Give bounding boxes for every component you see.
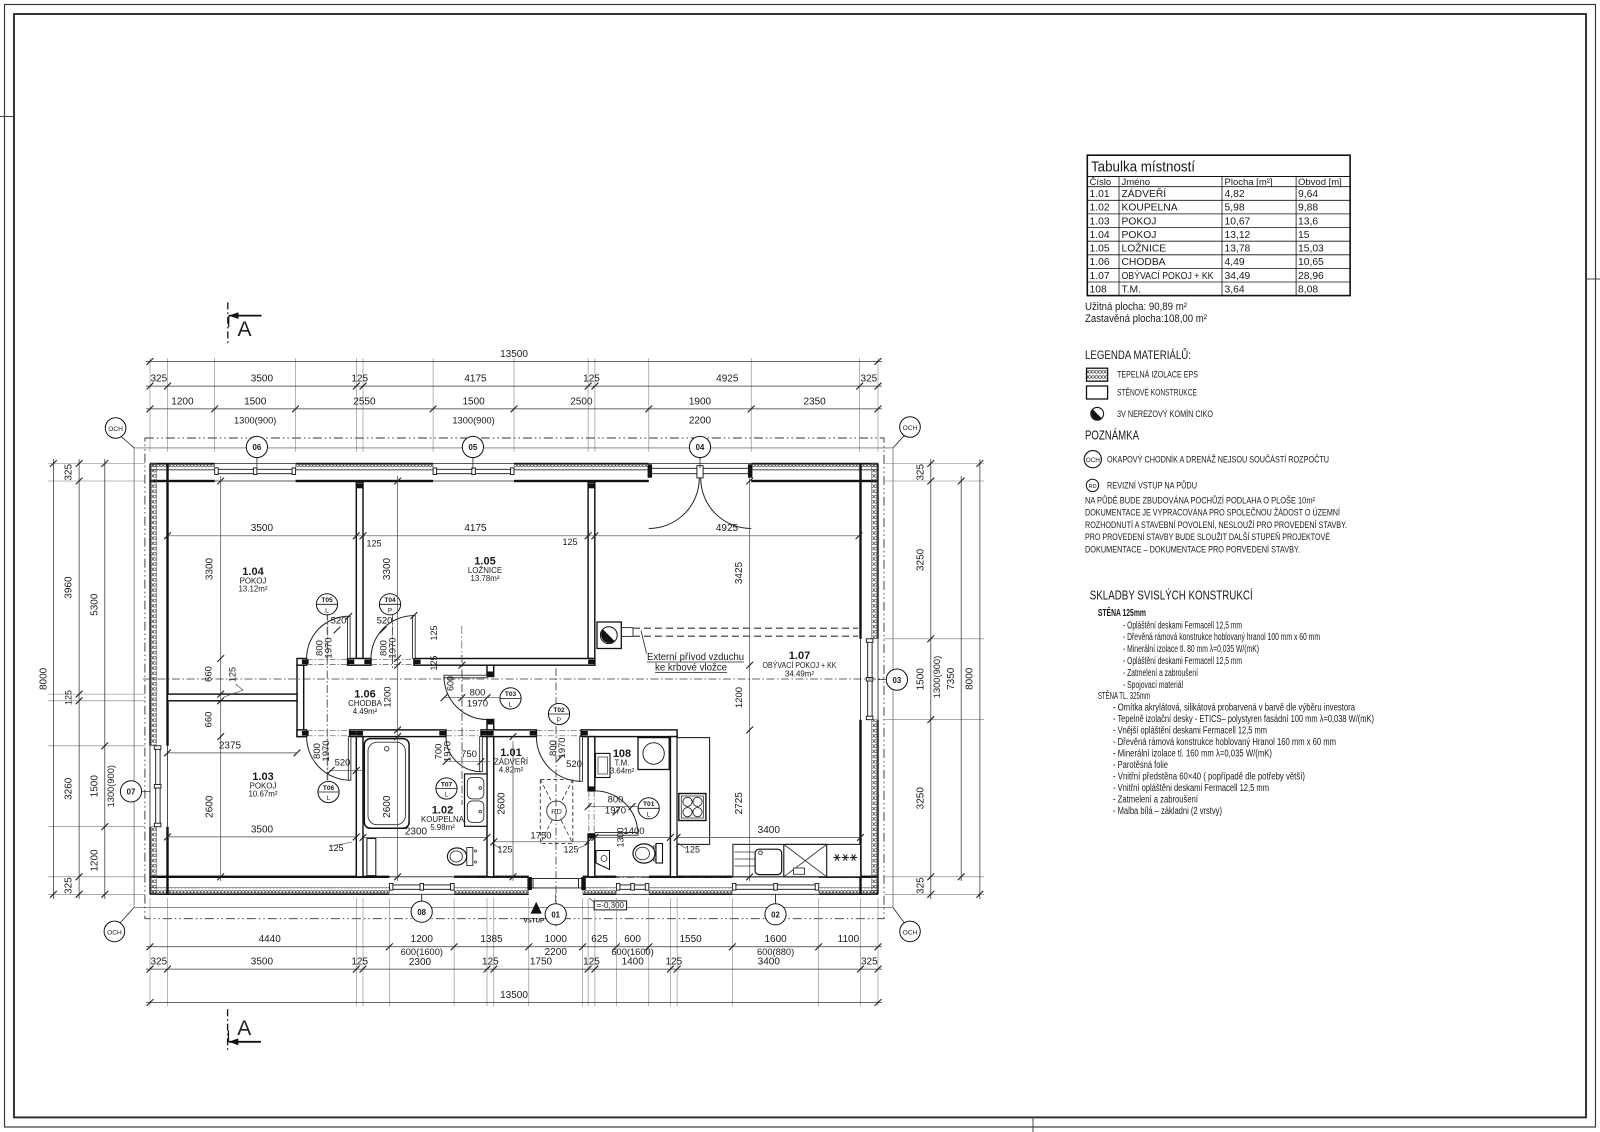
svg-text:OBÝVACÍ POKOJ + KK: OBÝVACÍ POKOJ + KK bbox=[1122, 269, 1214, 282]
svg-text:Jméno: Jméno bbox=[1122, 177, 1151, 188]
svg-text:800: 800 bbox=[608, 795, 624, 806]
svg-text:03: 03 bbox=[893, 676, 902, 685]
svg-text:=-0,300: =-0,300 bbox=[597, 901, 625, 910]
svg-text:1970: 1970 bbox=[321, 740, 332, 761]
svg-text:- Minerální izolace tl. 80 mm: - Minerální izolace tl. 80 mm λ=0,035 W/… bbox=[1123, 644, 1259, 655]
svg-text:34,49: 34,49 bbox=[1225, 271, 1251, 282]
svg-text:5.98m²: 5.98m² bbox=[430, 823, 455, 832]
svg-text:- Omítka akrylátová, silikátov: - Omítka akrylátová, silikátová probarve… bbox=[1113, 703, 1355, 714]
svg-text:325: 325 bbox=[150, 957, 167, 968]
svg-text:- Vnitřní opláštěni deskami Fe: - Vnitřní opláštěni deskami Fermacell 12… bbox=[1113, 783, 1269, 794]
svg-text:STĚNOVÉ KONSTRUKCE: STĚNOVÉ KONSTRUKCE bbox=[1117, 388, 1197, 398]
svg-text:3260: 3260 bbox=[64, 777, 75, 800]
svg-text:NA PŮDĚ BUDE ZBUDOVÁNA POCHŮZÍ: NA PŮDĚ BUDE ZBUDOVÁNA POCHŮZÍ PODLAHA O… bbox=[1085, 495, 1316, 507]
svg-text:325: 325 bbox=[861, 374, 878, 385]
svg-text:OCH: OCH bbox=[903, 929, 918, 936]
svg-text:520: 520 bbox=[335, 758, 351, 769]
svg-text:1.05: 1.05 bbox=[1090, 244, 1110, 255]
svg-text:3300: 3300 bbox=[205, 557, 216, 580]
svg-text:325: 325 bbox=[915, 877, 926, 894]
svg-text:1300(900): 1300(900) bbox=[452, 416, 494, 426]
svg-text:1.01: 1.01 bbox=[1090, 189, 1110, 200]
svg-text:1300(900): 1300(900) bbox=[234, 416, 276, 426]
svg-text:2350: 2350 bbox=[803, 396, 826, 407]
svg-text:OCH: OCH bbox=[108, 426, 123, 433]
svg-text:2600: 2600 bbox=[205, 795, 216, 818]
svg-text:1900: 1900 bbox=[689, 396, 712, 407]
svg-text:10,67: 10,67 bbox=[1225, 216, 1251, 227]
svg-text:ZÁDVEŘÍ: ZÁDVEŘÍ bbox=[1122, 187, 1167, 200]
svg-text:125: 125 bbox=[563, 845, 578, 855]
svg-text:- Dřevěná rámová konstrukce ho: - Dřevěná rámová konstrukce hoblovaný Hr… bbox=[1113, 737, 1336, 748]
svg-text:600(1600): 600(1600) bbox=[401, 947, 443, 957]
svg-text:13500: 13500 bbox=[500, 349, 528, 360]
svg-text:125: 125 bbox=[685, 845, 700, 855]
svg-text:1750: 1750 bbox=[530, 830, 551, 841]
svg-text:T.M.: T.M. bbox=[1122, 284, 1141, 295]
svg-text:- Parotěsná folie: - Parotěsná folie bbox=[1113, 760, 1168, 771]
svg-text:RD: RD bbox=[1088, 484, 1096, 490]
svg-text:520: 520 bbox=[566, 759, 582, 770]
svg-text:RD: RD bbox=[551, 807, 562, 816]
svg-text:1500: 1500 bbox=[462, 396, 485, 407]
svg-text:125: 125 bbox=[429, 655, 439, 670]
svg-text:1.04: 1.04 bbox=[1090, 230, 1110, 241]
svg-text:1200: 1200 bbox=[90, 849, 101, 872]
svg-text:1385: 1385 bbox=[480, 934, 503, 945]
svg-text:3V NEREZOVÝ KOMÍN CIKO: 3V NEREZOVÝ KOMÍN CIKO bbox=[1117, 409, 1213, 419]
svg-text:L: L bbox=[325, 608, 329, 615]
svg-text:PRO PROVEDENÍ STAVBY BUDE SLOU: PRO PROVEDENÍ STAVBY BUDE SLOUŽIT DALŠÍ … bbox=[1085, 532, 1330, 543]
svg-text:CHODBA: CHODBA bbox=[1122, 257, 1166, 268]
svg-text:1970: 1970 bbox=[605, 806, 626, 817]
svg-text:15,03: 15,03 bbox=[1298, 244, 1324, 255]
svg-text:125: 125 bbox=[351, 374, 368, 385]
svg-text:1550: 1550 bbox=[679, 934, 702, 945]
svg-text:10.67m²: 10.67m² bbox=[249, 789, 278, 798]
svg-text:125: 125 bbox=[562, 537, 577, 547]
svg-text:1.06: 1.06 bbox=[1090, 257, 1110, 268]
svg-text:2300: 2300 bbox=[405, 827, 428, 838]
svg-text:08: 08 bbox=[417, 908, 426, 917]
svg-text:2375: 2375 bbox=[219, 740, 242, 751]
svg-text:3400: 3400 bbox=[758, 957, 781, 968]
svg-text:- Tepelně izolační desky - ETI: - Tepelně izolační desky - ETICS– polyst… bbox=[1113, 714, 1374, 725]
svg-text:TEPELNÁ IZOLACE EPS: TEPELNÁ IZOLACE EPS bbox=[1117, 370, 1198, 380]
svg-text:L: L bbox=[509, 702, 513, 709]
svg-text:125: 125 bbox=[497, 845, 512, 855]
svg-text:- Opláštění deskami Fermacell: - Opláštění deskami Fermacell 12,5 mm bbox=[1123, 620, 1242, 631]
svg-text:DOKUMENTACE JE VYPRACOVÁNA PRO: DOKUMENTACE JE VYPRACOVÁNA PRO SPOLEČNOU… bbox=[1085, 508, 1340, 519]
svg-text:1500: 1500 bbox=[915, 668, 926, 691]
svg-text:- Minerální izolace tl. 160 mm: - Minerální izolace tl. 160 mm λ=0,035 W… bbox=[1113, 749, 1272, 760]
svg-text:T04: T04 bbox=[384, 597, 396, 604]
svg-text:POKOJ: POKOJ bbox=[1122, 230, 1157, 241]
svg-text:01: 01 bbox=[551, 911, 560, 920]
svg-text:L: L bbox=[445, 792, 449, 799]
svg-text:OCH: OCH bbox=[1086, 457, 1101, 464]
svg-text:1970: 1970 bbox=[388, 637, 399, 658]
svg-text:34.49m²: 34.49m² bbox=[785, 670, 814, 679]
svg-text:4175: 4175 bbox=[464, 523, 487, 534]
svg-text:1200: 1200 bbox=[411, 934, 434, 945]
svg-text:8000: 8000 bbox=[39, 667, 50, 690]
svg-text:3,64: 3,64 bbox=[1225, 284, 1245, 295]
svg-text:2200: 2200 bbox=[689, 416, 712, 427]
svg-text:125: 125 bbox=[583, 957, 600, 968]
svg-text:2600: 2600 bbox=[497, 792, 508, 815]
svg-text:2725: 2725 bbox=[734, 792, 745, 815]
svg-text:- Dřevěná rámová konstrukce ho: - Dřevěná rámová konstrukce hoblovaný hr… bbox=[1123, 632, 1320, 643]
svg-text:800: 800 bbox=[470, 688, 486, 699]
svg-text:5,98: 5,98 bbox=[1225, 203, 1245, 214]
svg-text:LOŽNICE: LOŽNICE bbox=[1122, 242, 1167, 255]
svg-text:3500: 3500 bbox=[251, 523, 274, 534]
svg-text:L: L bbox=[327, 795, 331, 802]
svg-text:A: A bbox=[237, 318, 251, 341]
svg-text:3300: 3300 bbox=[382, 557, 393, 580]
svg-text:1970: 1970 bbox=[324, 637, 335, 658]
svg-text:1300(900): 1300(900) bbox=[106, 765, 116, 807]
svg-text:P: P bbox=[557, 717, 562, 724]
svg-text:4925: 4925 bbox=[716, 374, 739, 385]
svg-text:625: 625 bbox=[591, 934, 608, 945]
svg-text:KOUPELNA: KOUPELNA bbox=[1122, 203, 1178, 214]
svg-text:REVIZNÍ VSTUP NA PŮDU: REVIZNÍ VSTUP NA PŮDU bbox=[1107, 480, 1197, 491]
svg-text:125: 125 bbox=[429, 625, 439, 640]
svg-text:5300: 5300 bbox=[90, 593, 101, 616]
svg-text:660: 660 bbox=[204, 712, 215, 728]
svg-text:P: P bbox=[388, 608, 393, 615]
svg-text:Užitná plocha: 90,89 m²: Užitná plocha: 90,89 m² bbox=[1085, 301, 1187, 313]
svg-text:- Zatmelení a zabroušení: - Zatmelení a zabroušení bbox=[1113, 795, 1198, 806]
svg-text:T03: T03 bbox=[505, 691, 517, 698]
svg-text:T01: T01 bbox=[643, 801, 655, 808]
svg-text:13.78m²: 13.78m² bbox=[471, 574, 500, 583]
svg-text:3250: 3250 bbox=[915, 787, 926, 810]
svg-text:Plocha [m²]: Plocha [m²] bbox=[1225, 177, 1273, 188]
svg-text:750: 750 bbox=[461, 749, 477, 760]
svg-text:3500: 3500 bbox=[251, 374, 274, 385]
svg-text:Číslo: Číslo bbox=[1090, 177, 1112, 188]
svg-text:1600: 1600 bbox=[764, 934, 787, 945]
svg-text:8000: 8000 bbox=[965, 667, 976, 690]
svg-text:3400: 3400 bbox=[758, 825, 781, 836]
svg-text:1.07: 1.07 bbox=[1090, 271, 1110, 282]
svg-text:T02: T02 bbox=[553, 707, 565, 714]
svg-text:125: 125 bbox=[482, 957, 499, 968]
svg-text:13500: 13500 bbox=[500, 990, 528, 1001]
svg-text:125: 125 bbox=[665, 957, 682, 968]
svg-text:28,96: 28,96 bbox=[1298, 271, 1324, 282]
svg-text:OKAPOVÝ CHODNÍK A DRENÁŽ NEJSO: OKAPOVÝ CHODNÍK A DRENÁŽ NEJSOU SOUČÁSTÍ… bbox=[1107, 455, 1329, 465]
svg-text:1400: 1400 bbox=[623, 826, 644, 837]
svg-text:4,82: 4,82 bbox=[1225, 189, 1245, 200]
svg-text:600: 600 bbox=[624, 934, 641, 945]
svg-text:1200: 1200 bbox=[383, 686, 394, 707]
svg-text:3425: 3425 bbox=[734, 561, 745, 584]
svg-text:7350: 7350 bbox=[946, 667, 957, 690]
svg-text:1500: 1500 bbox=[90, 775, 101, 798]
svg-text:1400: 1400 bbox=[622, 957, 645, 968]
svg-text:13.12m²: 13.12m² bbox=[239, 584, 268, 593]
svg-text:1.02: 1.02 bbox=[1090, 203, 1110, 214]
svg-text:Obvod [m]: Obvod [m] bbox=[1298, 177, 1342, 188]
svg-text:Externí přívod vzduchu: Externí přívod vzduchu bbox=[647, 652, 744, 663]
svg-text:15: 15 bbox=[1298, 230, 1310, 241]
svg-text:1100: 1100 bbox=[838, 934, 860, 945]
svg-text:3500: 3500 bbox=[251, 957, 274, 968]
svg-text:05: 05 bbox=[469, 443, 478, 452]
svg-text:4,49: 4,49 bbox=[1225, 257, 1245, 268]
svg-text:- Zatmelení a zabroušení: - Zatmelení a zabroušení bbox=[1123, 668, 1198, 679]
svg-text:4925: 4925 bbox=[716, 523, 739, 534]
svg-text:4440: 4440 bbox=[259, 934, 282, 945]
svg-text:T07: T07 bbox=[441, 781, 453, 788]
svg-text:1300: 1300 bbox=[616, 827, 626, 847]
svg-text:- Spojovací materiál: - Spojovací materiál bbox=[1123, 680, 1183, 691]
svg-text:1.03: 1.03 bbox=[1090, 216, 1110, 227]
svg-text:VSTUP: VSTUP bbox=[523, 917, 544, 924]
svg-text:02: 02 bbox=[771, 911, 780, 920]
svg-text:04: 04 bbox=[696, 443, 705, 452]
svg-text:325: 325 bbox=[64, 877, 75, 894]
svg-text:A: A bbox=[237, 1017, 251, 1040]
svg-text:- Opláštění deskami Fermacell: - Opláštění deskami Fermacell 12,5 mm bbox=[1123, 656, 1242, 667]
svg-text:OCH: OCH bbox=[903, 425, 918, 432]
svg-text:2300: 2300 bbox=[409, 957, 432, 968]
svg-text:325: 325 bbox=[915, 464, 926, 481]
svg-text:13,12: 13,12 bbox=[1225, 230, 1251, 241]
svg-text:10,65: 10,65 bbox=[1298, 257, 1324, 268]
svg-text:8,08: 8,08 bbox=[1298, 284, 1318, 295]
svg-text:520: 520 bbox=[377, 616, 393, 627]
svg-text:1970: 1970 bbox=[557, 737, 568, 758]
svg-text:4.82m²: 4.82m² bbox=[499, 765, 524, 774]
svg-text:325: 325 bbox=[150, 374, 167, 385]
svg-text:06: 06 bbox=[253, 443, 262, 452]
svg-text:- Vnitřní předstěna 60×40 ( po: - Vnitřní předstěna 60×40 ( popřípadě dl… bbox=[1113, 772, 1305, 783]
svg-text:POZNÁMKA: POZNÁMKA bbox=[1085, 428, 1139, 443]
svg-text:ROZHODNUTÍ A STAVEBNÍ POVOLENÍ: ROZHODNUTÍ A STAVEBNÍ POVOLENÍ, NESLOUŽÍ… bbox=[1085, 520, 1347, 531]
svg-text:325: 325 bbox=[861, 957, 878, 968]
svg-text:T05: T05 bbox=[321, 597, 333, 604]
svg-text:325: 325 bbox=[64, 464, 75, 481]
svg-text:9,88: 9,88 bbox=[1298, 203, 1318, 214]
svg-text:Tabulka místností: Tabulka místností bbox=[1091, 160, 1195, 176]
svg-text:660: 660 bbox=[204, 666, 215, 682]
svg-text:520: 520 bbox=[331, 616, 347, 627]
svg-text:1750: 1750 bbox=[530, 957, 553, 968]
svg-text:3.64m²: 3.64m² bbox=[610, 766, 635, 775]
svg-text:13,78: 13,78 bbox=[1225, 244, 1251, 255]
svg-text:3960: 3960 bbox=[64, 576, 75, 599]
svg-text:STĚNA 125mm: STĚNA 125mm bbox=[1098, 606, 1146, 619]
svg-text:OCH: OCH bbox=[107, 929, 122, 936]
svg-text:07: 07 bbox=[127, 788, 136, 797]
svg-text:3250: 3250 bbox=[915, 548, 926, 571]
svg-text:3500: 3500 bbox=[251, 824, 274, 835]
svg-text:POKOJ: POKOJ bbox=[1122, 216, 1157, 227]
svg-text:2550: 2550 bbox=[353, 396, 376, 407]
svg-text:- Vnější opláštění deskami Fer: - Vnější opláštění deskami Fermacell 12,… bbox=[1113, 726, 1267, 737]
svg-text:SKLADBY SVISLÝCH KONSTRUKCÍ: SKLADBY SVISLÝCH KONSTRUKCÍ bbox=[1090, 588, 1253, 603]
svg-text:125: 125 bbox=[351, 957, 368, 968]
svg-text:2600: 2600 bbox=[382, 795, 393, 818]
svg-text:LEGENDA MATERIÁLŮ:: LEGENDA MATERIÁLŮ: bbox=[1085, 347, 1191, 362]
svg-text:DOKUMENTACE – DOKUMENTACE PRO: DOKUMENTACE – DOKUMENTACE PRO PORVEDENÍ … bbox=[1085, 544, 1300, 555]
svg-text:125: 125 bbox=[228, 667, 238, 682]
svg-text:108: 108 bbox=[1090, 284, 1107, 295]
svg-text:4175: 4175 bbox=[464, 374, 487, 385]
svg-text:STĚNA TL. 325mm: STĚNA TL. 325mm bbox=[1098, 689, 1150, 702]
svg-text:1200: 1200 bbox=[734, 687, 745, 708]
svg-text:9,64: 9,64 bbox=[1298, 189, 1318, 200]
svg-text:125: 125 bbox=[366, 539, 381, 549]
svg-text:1200: 1200 bbox=[171, 396, 194, 407]
svg-text:1300(900): 1300(900) bbox=[932, 656, 942, 698]
svg-text:600: 600 bbox=[446, 676, 456, 691]
svg-text:1500: 1500 bbox=[244, 396, 267, 407]
svg-text:L: L bbox=[647, 812, 651, 819]
svg-text:T06: T06 bbox=[323, 785, 335, 792]
svg-text:2500: 2500 bbox=[570, 396, 593, 407]
svg-text:- Malba bílá – základni (2 vrs: - Malba bílá – základni (2 vrstvy) bbox=[1113, 806, 1222, 817]
svg-text:125: 125 bbox=[64, 690, 74, 705]
svg-text:4.49m²: 4.49m² bbox=[353, 707, 378, 716]
svg-text:13,6: 13,6 bbox=[1298, 216, 1318, 227]
svg-text:ke krbové vložce: ke krbové vložce bbox=[655, 663, 728, 674]
svg-text:125: 125 bbox=[583, 374, 600, 385]
svg-text:1000: 1000 bbox=[545, 934, 568, 945]
svg-text:Zastavěná plocha:108,00 m²: Zastavěná plocha:108,00 m² bbox=[1085, 313, 1207, 325]
